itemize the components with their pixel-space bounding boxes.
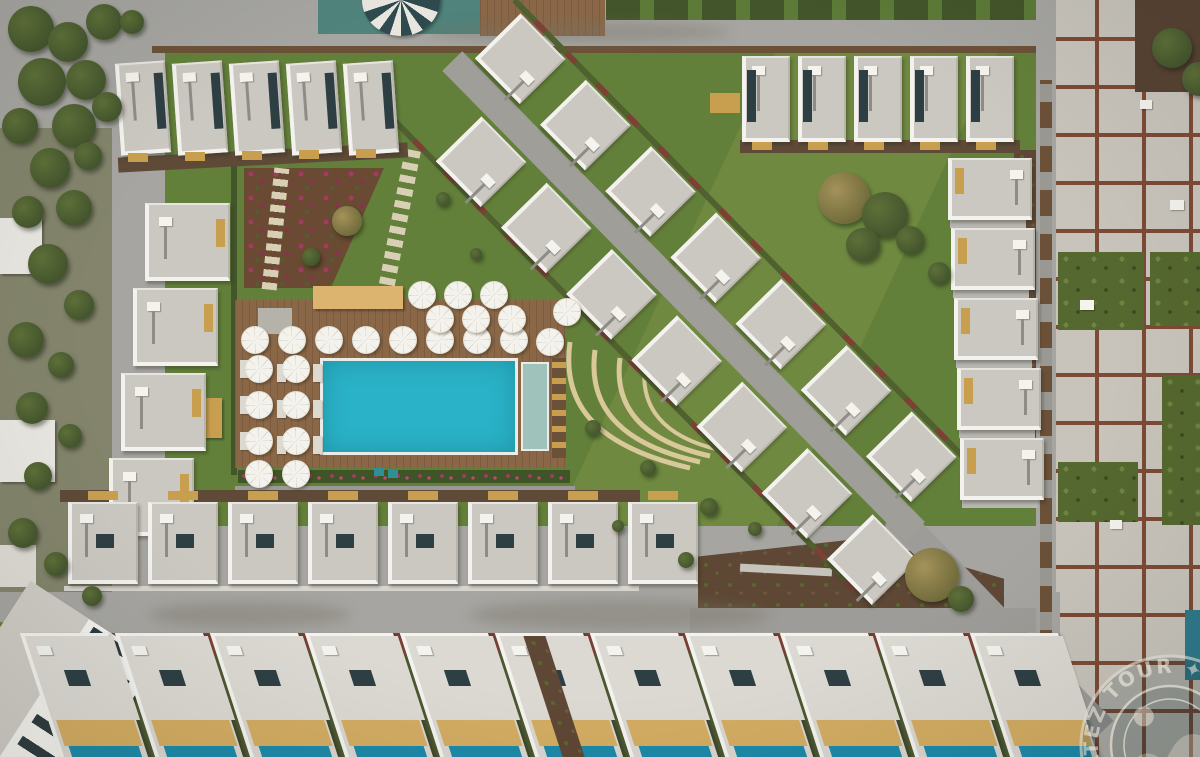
villa-roof bbox=[228, 502, 298, 584]
tree bbox=[640, 460, 656, 476]
rooftop-pipe bbox=[569, 146, 590, 167]
skylight-window bbox=[176, 534, 194, 548]
rooftop-ac-unit bbox=[131, 646, 148, 655]
terrace-gold-awning bbox=[864, 142, 884, 150]
rooftop-pipe bbox=[504, 80, 525, 101]
rooftop-ac-unit bbox=[701, 646, 718, 655]
inner-courtyard bbox=[1162, 375, 1200, 525]
parasol bbox=[282, 460, 310, 488]
pergola-awning bbox=[248, 491, 278, 500]
rooftop-pipe bbox=[302, 82, 308, 121]
rooftop-ac-unit bbox=[80, 514, 93, 523]
tree bbox=[8, 322, 44, 358]
inner-courtyard bbox=[1058, 252, 1144, 330]
villa-roof bbox=[68, 502, 138, 584]
skylight-window bbox=[256, 534, 274, 548]
pergola bbox=[56, 720, 142, 746]
pergola bbox=[816, 720, 902, 746]
skylight-window bbox=[268, 73, 281, 129]
tree bbox=[928, 262, 950, 284]
rooftop-pipe bbox=[1027, 459, 1030, 485]
villa-roof bbox=[910, 56, 958, 142]
tree bbox=[332, 206, 362, 236]
terrace-deck bbox=[959, 430, 1035, 438]
parasol bbox=[408, 281, 436, 309]
villa-roof bbox=[742, 56, 790, 142]
villa-roof bbox=[468, 502, 538, 584]
rooftop-ac-unit bbox=[240, 514, 253, 523]
villa-roof bbox=[960, 438, 1044, 500]
tree bbox=[86, 4, 122, 40]
skylight-window bbox=[496, 534, 514, 548]
swimming-pool bbox=[320, 358, 518, 455]
tree bbox=[585, 420, 601, 436]
villa-roof bbox=[854, 56, 902, 142]
tree bbox=[1152, 28, 1192, 68]
sun-lounger bbox=[313, 364, 322, 382]
pergola bbox=[911, 720, 997, 746]
rooftop-pipe bbox=[1021, 319, 1024, 345]
villa-roof bbox=[286, 60, 342, 155]
rooftop-pipe bbox=[699, 279, 720, 300]
rooftop-ac-unit bbox=[160, 514, 173, 523]
tree bbox=[302, 248, 320, 266]
rooftop-pipe bbox=[245, 523, 248, 557]
skylight-window bbox=[803, 70, 812, 122]
terrace-gold-awning bbox=[299, 150, 319, 159]
private-pool bbox=[829, 746, 904, 757]
rooftop-ac-unit bbox=[400, 514, 413, 523]
villa-roof bbox=[115, 60, 171, 155]
rooftop-pipe bbox=[829, 412, 850, 433]
rooftop-pipe bbox=[1015, 179, 1018, 205]
villa-roof bbox=[145, 203, 230, 281]
tree bbox=[82, 586, 102, 606]
villa-roof bbox=[957, 368, 1041, 430]
rooftop-ac-unit bbox=[606, 646, 623, 655]
rooftop-pipe bbox=[359, 82, 365, 121]
villa-roof bbox=[172, 60, 228, 155]
villa-roof bbox=[798, 56, 846, 142]
rooftop-ac-unit bbox=[1022, 450, 1035, 459]
rooftop-pipe bbox=[757, 75, 760, 111]
skylight-window bbox=[971, 70, 980, 122]
parasol bbox=[352, 326, 380, 354]
rooftop-ac-unit bbox=[1016, 310, 1029, 319]
rooftop-pipe bbox=[725, 448, 746, 469]
pergola-awning bbox=[408, 491, 438, 500]
terrace-gold-awning bbox=[752, 142, 772, 150]
pergola bbox=[341, 720, 427, 746]
private-pool bbox=[259, 746, 334, 757]
rooftop-pipe bbox=[405, 523, 408, 557]
pergola bbox=[151, 720, 237, 746]
rooftop-pipe bbox=[245, 82, 251, 121]
rooftop-pipe bbox=[595, 316, 616, 337]
skylight-window bbox=[859, 70, 868, 122]
parasol bbox=[278, 326, 306, 354]
pergola-awning bbox=[488, 491, 518, 500]
skylight-window bbox=[656, 534, 674, 548]
rooftop-ac-unit bbox=[891, 646, 908, 655]
walkway-curb bbox=[64, 586, 639, 591]
private-pool bbox=[164, 746, 239, 757]
parasol bbox=[241, 326, 269, 354]
terrace-gold-awning bbox=[242, 151, 262, 160]
garden-pergola bbox=[710, 93, 740, 113]
rooftop-ac-unit bbox=[796, 646, 813, 655]
rooftop-ac-unit bbox=[1010, 170, 1023, 179]
terrace-deck bbox=[950, 220, 1026, 228]
skylight-window bbox=[325, 73, 338, 129]
tree bbox=[8, 6, 54, 52]
gold-awning bbox=[964, 378, 973, 404]
pavement-stain bbox=[470, 600, 770, 630]
private-pool bbox=[69, 746, 144, 757]
tree bbox=[896, 226, 924, 254]
rooftop-ac-unit bbox=[1019, 380, 1032, 389]
pergola-awning bbox=[168, 491, 198, 500]
terrace-deck bbox=[962, 500, 1038, 508]
villa-roof bbox=[948, 158, 1032, 220]
rooftop-pipe bbox=[164, 226, 167, 259]
tree bbox=[28, 244, 68, 284]
rooftop-pipe bbox=[1024, 389, 1027, 415]
gold-awning bbox=[958, 238, 967, 264]
tree bbox=[64, 290, 94, 320]
rooftop-pipe bbox=[530, 249, 551, 270]
rooftop-ac-unit bbox=[159, 217, 172, 226]
pergola bbox=[721, 720, 807, 746]
rooftop-pipe bbox=[813, 75, 816, 111]
inner-courtyard bbox=[1058, 462, 1138, 522]
rooftop-ac-unit bbox=[416, 646, 433, 655]
gold-awning bbox=[967, 448, 976, 474]
pergola bbox=[246, 720, 332, 746]
rooftop-pipe bbox=[165, 523, 168, 557]
rooftop-ac-unit bbox=[986, 646, 1003, 655]
tree bbox=[48, 352, 74, 378]
private-pool bbox=[449, 746, 524, 757]
rooftop-pipe bbox=[188, 82, 194, 121]
tree bbox=[678, 552, 694, 568]
pavement-stain bbox=[150, 602, 350, 628]
pergola bbox=[436, 720, 522, 746]
rooftop-ac-unit bbox=[1110, 520, 1122, 529]
villa-roof bbox=[229, 60, 285, 155]
villa-roof bbox=[954, 298, 1038, 360]
rooftop-ac-unit bbox=[511, 646, 528, 655]
rooftop-ac-unit bbox=[1170, 200, 1184, 210]
top-road-mulch-strip bbox=[152, 46, 1052, 53]
private-pool bbox=[639, 746, 714, 757]
parasol bbox=[282, 427, 310, 455]
pool-toy bbox=[374, 468, 384, 476]
parasol bbox=[245, 460, 273, 488]
rooftop-pipe bbox=[325, 523, 328, 557]
pergola bbox=[626, 720, 712, 746]
tree bbox=[120, 10, 144, 34]
rooftop-ac-unit bbox=[1140, 100, 1152, 109]
private-pool bbox=[924, 746, 999, 757]
rooftop-pipe bbox=[790, 515, 811, 536]
parasol bbox=[536, 328, 564, 356]
villa-roof bbox=[121, 373, 206, 451]
rooftop-ac-unit bbox=[320, 514, 333, 523]
rooftop-ac-unit bbox=[640, 514, 653, 523]
terrace-gold-awning bbox=[808, 142, 828, 150]
skylight-window bbox=[416, 534, 434, 548]
parasol bbox=[498, 305, 526, 333]
villa-roof bbox=[548, 502, 618, 584]
rooftop-ac-unit bbox=[135, 387, 148, 396]
skylight-window bbox=[96, 534, 114, 548]
parasol bbox=[245, 427, 273, 455]
parasol bbox=[245, 391, 273, 419]
terrace-gold-awning bbox=[976, 142, 996, 150]
rooftop-pipe bbox=[634, 213, 655, 234]
shade-canopy bbox=[313, 286, 403, 309]
tree bbox=[30, 148, 70, 188]
rooftop-pipe bbox=[85, 523, 88, 557]
skylight-window bbox=[576, 534, 594, 548]
pergola-awning bbox=[328, 491, 358, 500]
rooftop-pipe bbox=[660, 382, 681, 403]
rooftop-pipe bbox=[981, 75, 984, 111]
private-pool bbox=[354, 746, 429, 757]
tree bbox=[44, 552, 68, 576]
tree bbox=[18, 58, 66, 106]
pergola-awning bbox=[568, 491, 598, 500]
terrace-deck bbox=[953, 290, 1029, 298]
tree bbox=[74, 142, 102, 170]
gold-awning bbox=[204, 304, 213, 332]
tree bbox=[846, 228, 880, 262]
tree bbox=[2, 108, 38, 144]
parasol bbox=[444, 281, 472, 309]
villa-roof bbox=[308, 502, 378, 584]
tree bbox=[470, 248, 482, 260]
terrace-gold-awning bbox=[128, 153, 148, 162]
villa-roof bbox=[388, 502, 458, 584]
parasol bbox=[462, 305, 490, 333]
parasol bbox=[553, 298, 581, 326]
tree bbox=[92, 92, 122, 122]
pergola-awning bbox=[88, 491, 118, 500]
aerial-photo-scene: TEZ TOUR ✦ TEZ TOUR ✦ TEZ TOUR ✦ TEZ TOU… bbox=[0, 0, 1200, 757]
tree bbox=[58, 424, 82, 448]
parasol bbox=[389, 326, 417, 354]
rooftop-ac-unit bbox=[36, 646, 53, 655]
pool-shallow-section bbox=[521, 362, 549, 451]
rooftop-pipe bbox=[565, 523, 568, 557]
rooftop-pipe bbox=[869, 75, 872, 111]
sun-lounger bbox=[313, 400, 322, 418]
rooftop-ac-unit bbox=[123, 472, 136, 481]
sun-lounger bbox=[313, 436, 322, 454]
skylight-window bbox=[747, 70, 756, 122]
terrace-gold-awning bbox=[920, 142, 940, 150]
parasol bbox=[480, 281, 508, 309]
pool-toy bbox=[388, 470, 398, 478]
rooftop-pipe bbox=[1018, 249, 1021, 275]
gold-awning bbox=[961, 308, 970, 334]
rooftop-ac-unit bbox=[226, 646, 243, 655]
tree bbox=[56, 190, 92, 226]
skylight-window bbox=[154, 73, 167, 129]
rooftop-ac-unit bbox=[1080, 300, 1094, 310]
rooftop-pipe bbox=[764, 345, 785, 366]
skylight-window bbox=[336, 534, 354, 548]
tree bbox=[948, 586, 974, 612]
tree bbox=[748, 522, 762, 536]
rooftop-pipe bbox=[464, 183, 485, 204]
tree bbox=[24, 462, 52, 490]
rooftop-pipe bbox=[925, 75, 928, 111]
villa-roof bbox=[148, 502, 218, 584]
rooftop-pipe bbox=[645, 523, 648, 557]
parasol bbox=[245, 355, 273, 383]
top-hedge-row bbox=[606, 0, 1052, 20]
rooftop-ac-unit bbox=[321, 646, 338, 655]
villa-roof bbox=[343, 60, 399, 155]
rooftop-pipe bbox=[131, 82, 137, 121]
villa-roof bbox=[133, 288, 218, 366]
parasol bbox=[426, 305, 454, 333]
parasol bbox=[315, 326, 343, 354]
villa-roof bbox=[951, 228, 1035, 290]
poolside-planter-strip bbox=[552, 358, 566, 458]
rooftop-pipe bbox=[895, 478, 916, 499]
rooftop-ac-unit bbox=[480, 514, 493, 523]
skylight-window bbox=[211, 73, 224, 129]
skylight-window bbox=[915, 70, 924, 122]
gold-awning bbox=[192, 389, 201, 417]
rooftop-ac-unit bbox=[1013, 240, 1026, 249]
inner-courtyard bbox=[1150, 252, 1200, 326]
terrace-deck bbox=[956, 360, 1032, 368]
gold-awning bbox=[216, 219, 225, 247]
terrace-gold-awning bbox=[185, 152, 205, 161]
rooftop-pipe bbox=[152, 311, 155, 344]
villa-roof bbox=[628, 502, 698, 584]
rooftop-ac-unit bbox=[147, 302, 160, 311]
tree bbox=[48, 22, 88, 62]
tree bbox=[12, 196, 44, 228]
rooftop-pipe bbox=[856, 581, 877, 602]
roadside-planting bbox=[1040, 80, 1052, 700]
tree bbox=[700, 498, 718, 516]
villa-roof bbox=[966, 56, 1014, 142]
rooftop-ac-unit bbox=[560, 514, 573, 523]
skylight-window bbox=[382, 73, 395, 129]
pergola-awning bbox=[648, 491, 678, 500]
tree bbox=[436, 192, 450, 206]
parasol bbox=[282, 355, 310, 383]
terrace-gold-awning bbox=[356, 149, 376, 158]
gold-awning bbox=[955, 168, 964, 194]
tree bbox=[8, 518, 38, 548]
private-pool bbox=[734, 746, 809, 757]
rooftop-pipe bbox=[485, 523, 488, 557]
rooftop-pipe bbox=[140, 396, 143, 429]
tree bbox=[16, 392, 48, 424]
parasol bbox=[282, 391, 310, 419]
tree bbox=[612, 520, 624, 532]
